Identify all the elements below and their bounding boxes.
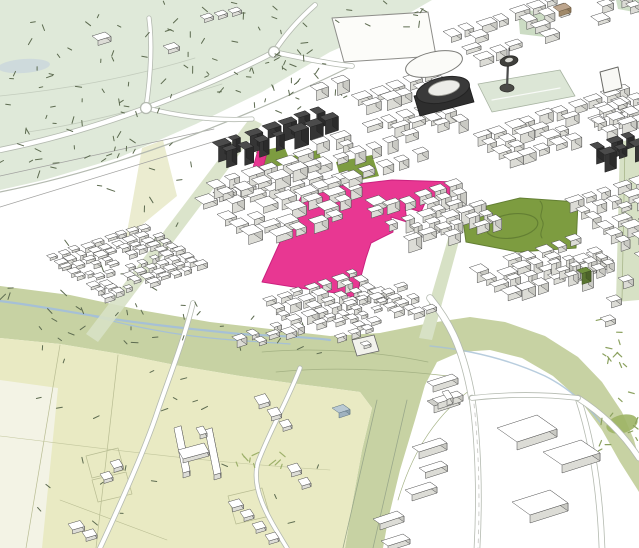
tree-mark: [414, 15, 418, 16]
city-masterplan-3d-view: [0, 0, 639, 548]
tree-mark: [53, 163, 59, 164]
tree-mark: [177, 180, 182, 181]
tree-mark: [31, 22, 36, 23]
map-canvas[interactable]: [0, 0, 639, 548]
roundabout-1: [269, 47, 280, 58]
tree-mark: [250, 458, 251, 462]
tree-mark: [153, 337, 158, 338]
tree-mark: [151, 481, 156, 482]
tree-mark: [281, 30, 282, 34]
park-white-plaza: [332, 12, 436, 62]
industrial-connector-road: [472, 395, 578, 398]
tree-mark: [6, 104, 11, 105]
tree-mark: [347, 10, 352, 11]
tree-mark: [303, 55, 304, 61]
tree-mark: [82, 121, 83, 126]
gate-building: [600, 67, 622, 93]
tower-mast: [507, 63, 508, 88]
tree-mark: [323, 64, 326, 65]
tree-mark: [97, 185, 101, 186]
roundabout-2: [141, 103, 152, 114]
